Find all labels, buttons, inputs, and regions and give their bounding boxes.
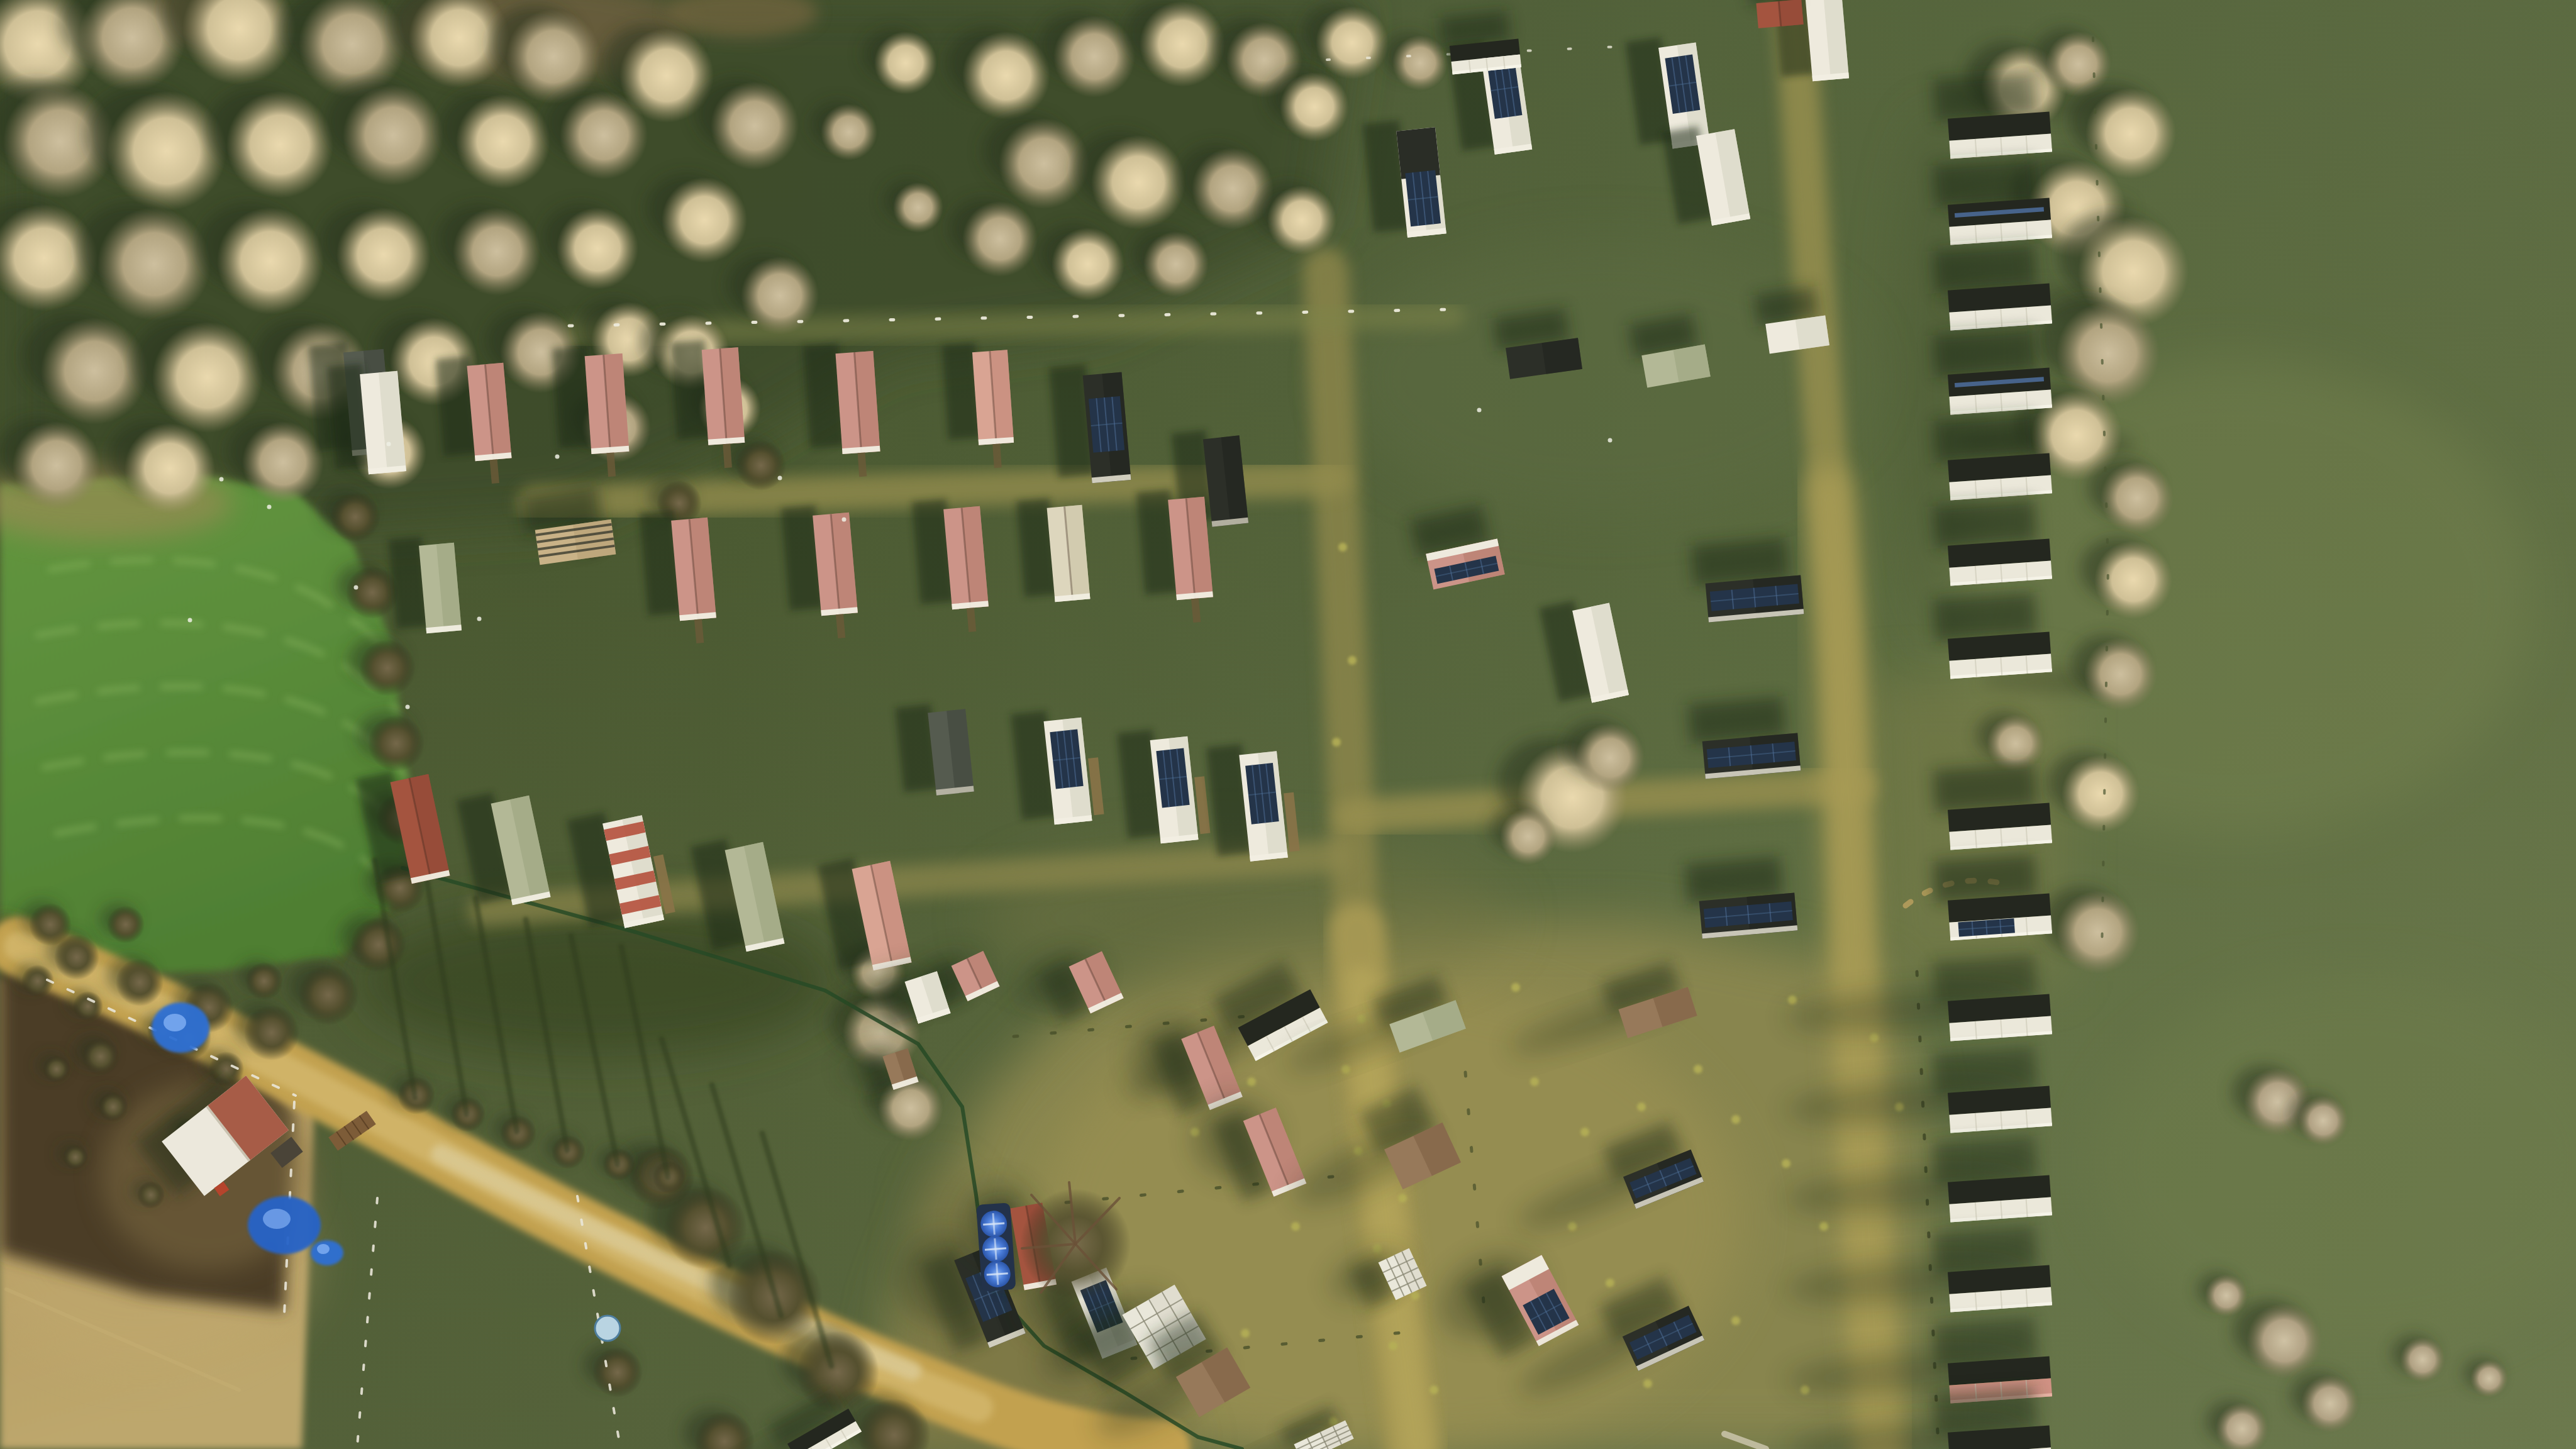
bare-tree — [711, 82, 799, 170]
bare-tree — [962, 31, 1050, 119]
grass-tuft — [1291, 1222, 1300, 1231]
bare-tree — [821, 104, 877, 160]
bare-tree — [2062, 755, 2140, 833]
grass-tuft — [1637, 1102, 1646, 1111]
grass-tuft — [1511, 983, 1520, 992]
scene-svg — [0, 0, 2576, 1449]
tarp-umbrella — [595, 1316, 620, 1341]
grass-tuft — [1819, 1222, 1828, 1231]
bare-tree — [359, 640, 416, 696]
cabin — [1933, 853, 2052, 941]
floating-debris — [354, 586, 358, 590]
cabin — [1933, 328, 2052, 416]
grass-tuft — [1430, 1385, 1438, 1394]
bare-tree — [368, 715, 425, 772]
floating-debris — [477, 617, 482, 621]
bare-tree — [1500, 808, 1557, 865]
grass-tuft — [1694, 1065, 1702, 1074]
bare-tree — [662, 177, 747, 263]
bare-tree — [107, 906, 145, 943]
bare-tree — [41, 318, 148, 425]
grass-tuft — [1241, 1329, 1250, 1338]
cabin — [1016, 496, 1091, 604]
cabin — [1933, 413, 2052, 501]
grass-tuft — [1731, 1316, 1740, 1325]
bare-tree — [2205, 1274, 2248, 1317]
cabin — [895, 701, 974, 799]
bare-tree — [29, 903, 72, 946]
grass-tuft — [1568, 1222, 1577, 1231]
blue-tarp-highlight — [164, 1014, 186, 1031]
bare-tree — [97, 208, 211, 321]
bare-tree — [962, 201, 1038, 277]
grass-tuft — [1389, 1341, 1397, 1350]
bare-tree — [2470, 1360, 2508, 1397]
bare-tree — [13, 421, 101, 509]
bare-tree — [453, 208, 541, 296]
floating-debris — [555, 455, 560, 459]
bare-tree — [1143, 231, 1209, 297]
bare-tree — [343, 85, 443, 186]
bare-tree — [116, 958, 164, 1006]
bare-tree — [1091, 135, 1185, 230]
floating-debris — [778, 476, 782, 480]
cabin — [1684, 855, 1797, 940]
cabin — [1049, 361, 1131, 486]
bare-tree — [107, 91, 226, 211]
bare-tree — [82, 1038, 119, 1075]
grass-tuft — [1348, 656, 1357, 665]
bare-tree — [1140, 1, 1225, 87]
bare-tree — [1052, 228, 1124, 301]
bare-tree — [63, 1145, 88, 1170]
bare-tree — [298, 965, 358, 1025]
bare-tree — [2094, 541, 2172, 619]
bare-tree — [2400, 1337, 2445, 1382]
grass-tuft — [1606, 1279, 1614, 1287]
bare-tree — [43, 1055, 70, 1083]
terrain-ellipse — [1340, 239, 1868, 516]
bare-tree — [346, 566, 399, 619]
cabin — [1933, 592, 2052, 680]
grass-tuft — [1332, 738, 1341, 747]
grass-tuft — [1398, 1194, 1407, 1202]
grass-tuft — [1731, 1115, 1740, 1124]
bare-tree — [226, 91, 333, 198]
bare-tree — [2084, 638, 2157, 711]
floating-debris — [842, 518, 847, 522]
floating-debris — [219, 477, 224, 482]
floating-debris — [1477, 408, 1482, 413]
bare-tree — [2298, 1096, 2348, 1146]
cabin — [1933, 499, 2052, 587]
bare-tree — [874, 31, 937, 94]
bare-tree — [336, 208, 431, 302]
cabin — [1933, 763, 2052, 851]
blue-tarp-highlight — [263, 1209, 291, 1229]
bare-tree — [1316, 6, 1389, 79]
bare-tree — [456, 94, 550, 189]
bare-tree — [330, 492, 380, 542]
boat-stack — [976, 1202, 1016, 1291]
bare-tree — [1280, 72, 1349, 142]
cabin — [1933, 72, 2052, 160]
floating-debris — [387, 442, 391, 447]
grass-tuft — [1782, 1159, 1790, 1168]
grass-tuft — [1247, 1077, 1256, 1086]
grass-tuft — [1341, 1065, 1350, 1074]
grass-tuft — [1870, 1033, 1879, 1042]
grass-tuft — [1338, 543, 1347, 552]
bare-tree — [1987, 714, 2045, 772]
floating-debris — [1608, 438, 1613, 443]
grass-tuft — [1580, 1128, 1589, 1136]
bare-tree — [2057, 891, 2140, 974]
bare-tree — [152, 322, 263, 433]
flood-aerial-scene — [0, 0, 2576, 1449]
bare-tree — [137, 1181, 165, 1209]
bare-tree — [2246, 1303, 2322, 1379]
bare-tree — [242, 421, 324, 503]
cabin — [388, 534, 462, 636]
bare-tree — [1575, 723, 1645, 792]
bare-tree — [217, 208, 324, 314]
bare-tree — [1053, 16, 1135, 97]
bare-tree — [2085, 88, 2176, 179]
bare-tree — [2101, 462, 2173, 535]
cabin — [1933, 243, 2052, 331]
bare-tree — [244, 1005, 299, 1060]
bare-tree — [736, 440, 786, 491]
grass-tuft — [1530, 1077, 1539, 1086]
bare-tree — [125, 423, 215, 514]
cabin — [1362, 116, 1446, 241]
bare-tree — [245, 962, 283, 1000]
bare-tree — [893, 182, 943, 233]
bare-tree — [73, 991, 103, 1021]
floating-debris — [406, 705, 410, 709]
bare-tree — [98, 1092, 128, 1122]
bare-tree — [557, 208, 638, 289]
cabin — [1687, 696, 1801, 780]
grass-tuft — [1643, 1379, 1652, 1388]
grass-tuft — [1357, 1014, 1366, 1023]
cabin — [1933, 158, 2052, 246]
blue-tarp-highlight — [317, 1244, 330, 1254]
bare-tree — [351, 917, 406, 972]
bare-tree — [592, 1347, 643, 1397]
bare-tree — [1392, 35, 1448, 91]
floating-debris — [267, 505, 272, 509]
bare-tree — [1267, 186, 1336, 255]
floating-debris — [188, 618, 192, 623]
bare-tree — [2301, 1375, 2359, 1433]
cabin — [327, 361, 406, 477]
grass-tuft — [1788, 996, 1797, 1004]
